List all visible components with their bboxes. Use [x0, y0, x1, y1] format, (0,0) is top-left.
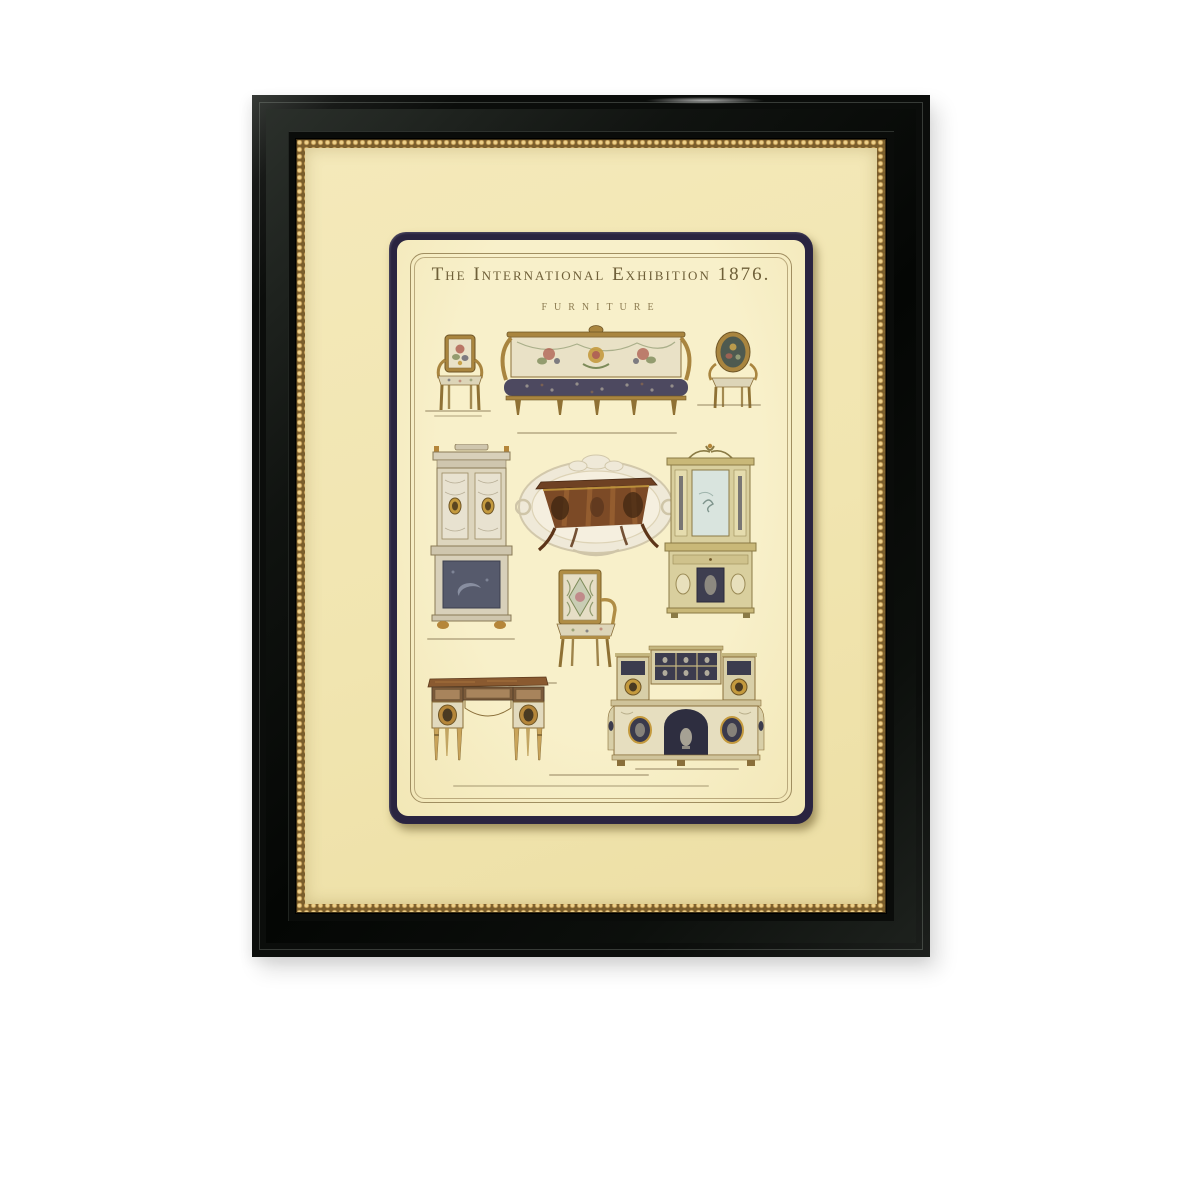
print-title: The International Exhibition 1876.: [397, 264, 805, 286]
frame-glare-highlight: [645, 97, 765, 104]
caption-sideboard: [635, 768, 739, 770]
print-navy-border: The International Exhibition 1876. FURNI…: [389, 232, 813, 824]
carved-sideboard-with-niche-illustration: [607, 642, 765, 767]
ivory-marquetry-cabinet-illustration: [425, 444, 518, 629]
caption-cabinet: [427, 638, 515, 640]
tapestry-armchair-square-back-illustration: [427, 332, 493, 418]
print-paper: The International Exhibition 1876. FURNI…: [397, 240, 805, 816]
print-subtitle: FURNITURE: [397, 302, 805, 313]
inlaid-writing-desk-illustration: [427, 668, 549, 768]
caption-bottom-line2: [453, 785, 709, 787]
picture-frame: The International Exhibition 1876. FURNI…: [252, 95, 930, 957]
caption-armchair: [425, 410, 491, 412]
tapestry-settee-illustration: [497, 324, 695, 424]
product-photo: The International Exhibition 1876. FURNI…: [0, 0, 1200, 1200]
caption-bottom-line1: [549, 774, 649, 776]
oval-back-armchair-illustration: [699, 330, 766, 412]
mirrored-display-cabinet-illustration: [659, 442, 762, 619]
caption-settee: [517, 432, 677, 434]
rococo-cartouche-with-commode-illustration: [515, 450, 677, 561]
mat-board: The International Exhibition 1876. FURNI…: [305, 148, 877, 904]
caption-oval-chair: [697, 404, 761, 406]
